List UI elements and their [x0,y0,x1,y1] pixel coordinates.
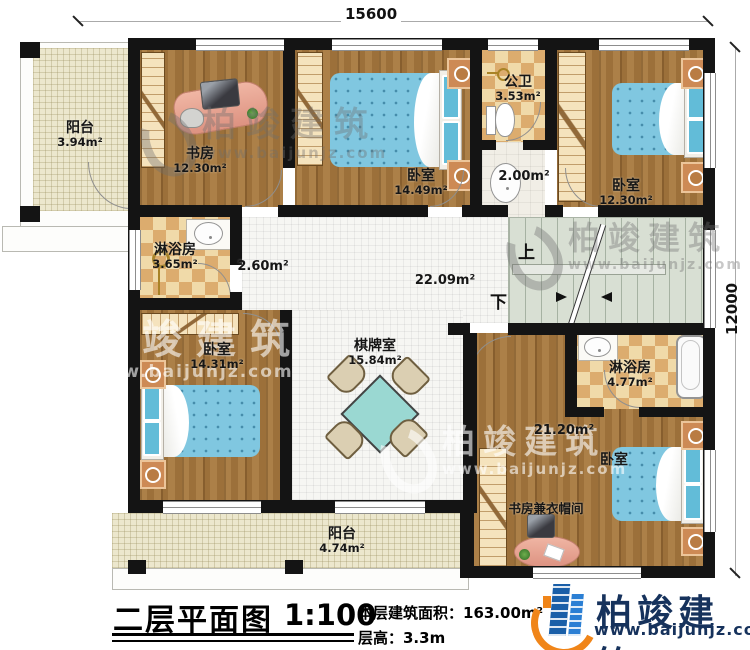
bathtub-inner [681,340,700,390]
stairs-direction-arrow [556,292,567,302]
label-study: 书房 12.30m² [173,146,226,175]
room-name: 阳台 [57,120,102,136]
stairs-down-label: 下 [490,288,507,313]
floor-height-text: 层高：3.3m [358,627,445,648]
room-area: 4.77m² [607,376,652,389]
title-underline [112,633,354,636]
label-bedroom-a: 卧室 14.49m² [394,168,447,197]
window [488,39,538,51]
label-cloakroom: 书房兼衣帽间 [508,502,583,516]
bed-pillow [143,421,161,456]
label-hall: 22.09m² [415,274,475,289]
bed-pillow [684,484,702,520]
label-bedroom-d: 卧室 [600,452,628,468]
railing-post [285,560,303,574]
wall [523,140,557,150]
room-name: 卧室 [394,168,447,184]
drain-dot [506,187,509,190]
bed [612,80,707,158]
label-balcony-bottom: 阳台 4.74m² [319,526,364,555]
wall [230,217,242,265]
window [599,39,689,51]
title-underline-thin [112,640,354,642]
lamp-icon [688,428,704,444]
dimension-right-value: 12000 [723,279,741,339]
lamp-icon [454,66,470,82]
label-wash: 2.00m² [498,170,549,185]
room-name: 淋浴房 [607,360,652,376]
room-area: 4.74m² [319,542,364,555]
bed [330,70,462,170]
wall [470,50,482,208]
room-area: 12.30m² [599,194,652,207]
computer-icon [200,78,241,110]
wall [280,310,292,513]
window [163,501,261,514]
room-area: 22.09m² [415,274,475,289]
window [332,39,442,51]
wall [462,205,508,217]
room-name: 书房 [173,146,226,162]
label-shower-a: 淋浴房 3.65m² [152,242,197,271]
wall [283,50,295,168]
wall [128,298,242,310]
bed [141,382,260,460]
wardrobe [141,52,165,168]
room-name: 卧室 [600,452,628,468]
wall [639,407,715,417]
room-area: 3.94m² [57,136,102,149]
drain-dot [209,236,212,239]
room-area: 3.53m² [495,90,540,103]
brand-logo-icon [533,580,591,646]
desk-chair [180,108,204,128]
lamp-icon [688,170,704,186]
bed-pillow [684,448,702,484]
floor-plan: 柏竣建筑 www.baijunjz.com 柏竣建筑 www.baijunjz.… [0,0,750,650]
stairs-up-label: 上 [518,238,535,263]
label-bedroom-d-area: 21.20m² [534,424,594,439]
railing-post [20,206,40,222]
window [704,450,716,532]
wall [463,333,477,513]
computer-icon [527,514,555,538]
wall [482,140,496,150]
railing-post [128,560,146,574]
window [129,230,141,290]
railing-post [20,42,40,58]
label-shower-b: 淋浴房 4.77m² [607,360,652,389]
washbasin [194,222,223,245]
plant-icon [247,108,258,119]
wall [508,323,715,335]
room-area: 14.31m² [190,358,243,371]
wall [140,205,242,217]
room-name: 公卫 [495,74,540,90]
lamp-icon [145,367,161,383]
room-area: 21.20m² [534,424,594,439]
room-name: 淋浴房 [152,242,197,258]
brand-url: www.baijunjz.com [594,620,750,639]
plant-icon [519,549,530,560]
label-public-bath: 公卫 3.53m² [495,74,540,103]
room-name: 卧室 [190,342,243,358]
sliding-door [335,501,425,514]
wall [278,205,428,217]
washbasin [584,337,611,357]
wardrobe [297,52,323,166]
stairs-direction-arrow [601,292,612,302]
window [533,567,641,579]
wall [565,333,577,417]
nightstand [140,360,166,389]
watermark-logo-icon [8,311,95,405]
label-game-room: 棋牌室 15.84m² [348,338,401,367]
window [704,73,716,168]
dimension-top-value: 15600 [341,5,401,23]
room-area: 2.00m² [498,170,549,185]
nightstand [140,460,166,489]
logo-block [543,596,551,608]
wardrobe [141,313,239,335]
room-name: 棋牌室 [348,338,401,354]
window [704,230,716,328]
room-name: 卧室 [599,178,652,194]
room-area: 15.84m² [348,354,401,367]
bed-pillow [143,386,161,421]
label-balcony-top: 阳台 3.94m² [57,120,102,149]
room-name: 书房兼衣帽间 [508,502,583,516]
room-area: 12.30m² [173,162,226,175]
bed-pillow [442,121,460,165]
window [196,39,284,51]
wardrobe [479,448,507,567]
wall [545,205,563,217]
brand-name: 柏竣建筑 [596,584,750,650]
wall [577,407,604,417]
room-area: 14.49m² [394,184,447,197]
drain-dot [598,349,601,352]
lamp-icon [688,66,704,82]
lamp-icon [688,534,704,550]
floor-area-text: 本层建筑面积：163.00m² [358,602,543,623]
room-area: 3.65m² [152,258,197,271]
room-area: 2.60m² [237,260,288,275]
label-bedroom-b: 卧室 12.30m² [599,178,652,207]
room-name: 阳台 [319,526,364,542]
lower-roof-outline [2,226,130,252]
label-corridor: 2.60m² [237,260,288,275]
label-bedroom-c: 卧室 14.31m² [190,342,243,371]
wall [545,50,557,150]
lamp-icon [145,467,161,483]
